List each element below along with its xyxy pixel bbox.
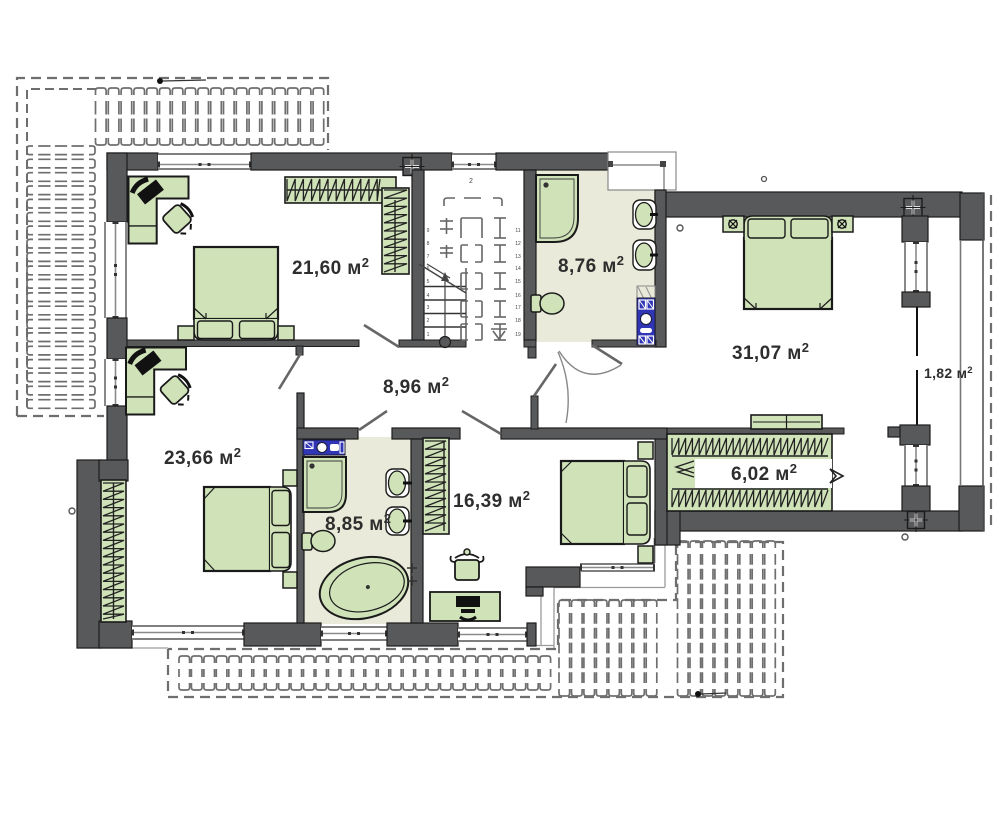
svg-text:19: 19 [515,332,521,338]
svg-text:7: 7 [427,254,430,260]
svg-text:3: 3 [427,305,430,311]
svg-text:9: 9 [427,228,430,234]
svg-text:1,82 м2: 1,82 м2 [924,365,973,381]
svg-text:13: 13 [515,254,521,260]
svg-text:11: 11 [515,228,520,234]
svg-text:8,76 м2: 8,76 м2 [558,253,624,277]
svg-text:8,96 м2: 8,96 м2 [383,374,449,398]
svg-text:6: 6 [427,266,430,272]
svg-text:1: 1 [427,332,430,338]
svg-text:6,02 м2: 6,02 м2 [731,461,797,485]
svg-text:23,66 м2: 23,66 м2 [164,445,241,469]
svg-text:17: 17 [515,305,521,311]
svg-text:12: 12 [515,241,521,247]
svg-text:2: 2 [469,178,473,185]
svg-text:16,39 м2: 16,39 м2 [453,488,530,512]
svg-text:2: 2 [427,318,430,324]
svg-text:8,85 м2: 8,85 м2 [325,511,391,535]
svg-text:16: 16 [515,293,521,299]
svg-text:8: 8 [427,241,430,247]
svg-text:15: 15 [515,279,521,285]
svg-text:4: 4 [427,293,430,299]
svg-text:5: 5 [427,279,430,285]
svg-text:31,07 м2: 31,07 м2 [732,340,809,364]
svg-text:14: 14 [515,266,521,272]
svg-text:21,60 м2: 21,60 м2 [292,255,369,279]
svg-text:18: 18 [515,318,521,324]
